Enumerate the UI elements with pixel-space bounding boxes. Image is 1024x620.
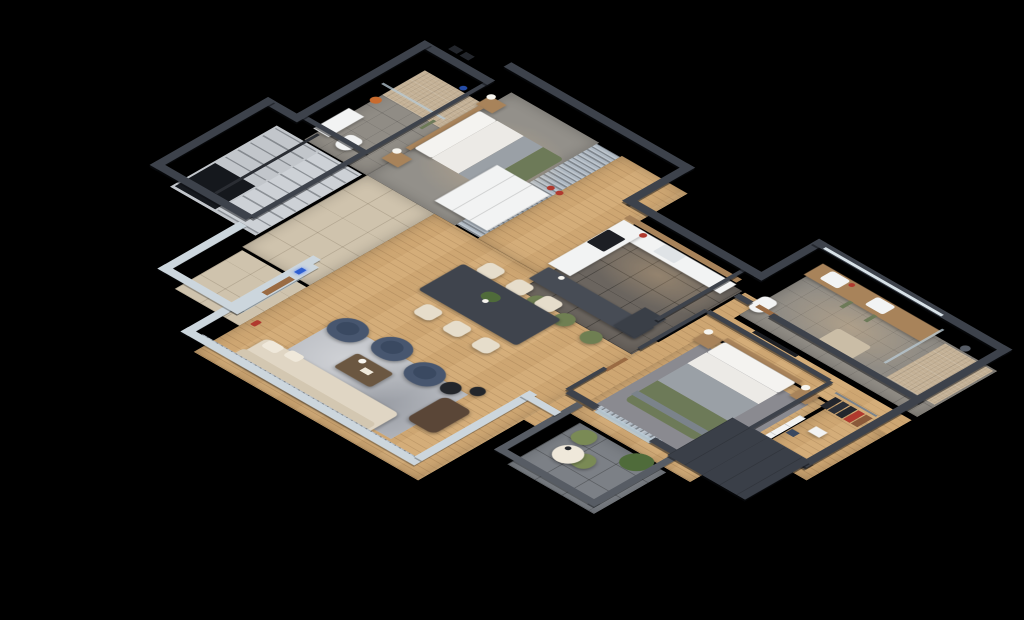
wall-planter-1 — [448, 45, 463, 54]
wall-planter-2 — [459, 52, 474, 61]
isometric-plan — [21, 40, 997, 600]
floor-plan-scene — [0, 0, 1024, 620]
